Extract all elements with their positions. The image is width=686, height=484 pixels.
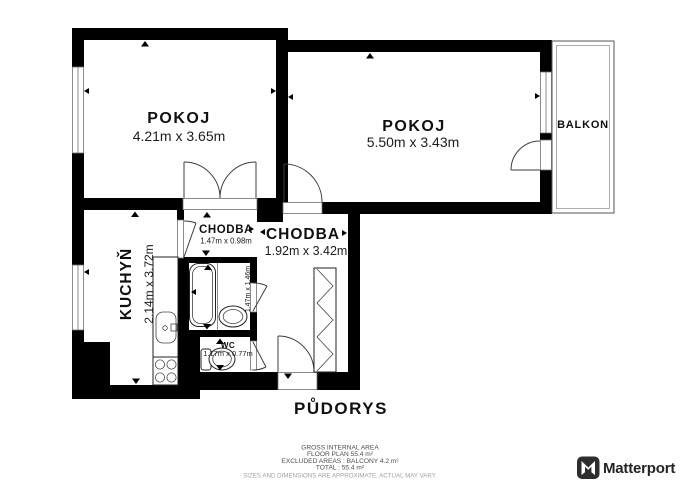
balkon-label: BALKON: [557, 119, 609, 131]
door-arc: [184, 162, 220, 198]
footer-line-4: TOTAL : 55.4 m²: [316, 465, 365, 472]
measure-arrow: [132, 379, 140, 385]
footer-disclaimer: SIZES AND DIMENSIONS ARE APPROXIMATE, AC…: [243, 473, 437, 480]
koupelna-dims: 1.47m x 1.46m: [245, 266, 252, 312]
kuchyn-dims: 2.14m x 3.72m: [142, 244, 156, 323]
door-arc: [278, 336, 314, 372]
wall-segment: [72, 198, 183, 210]
floorplan-page: POKOJ 4.21m x 3.65m POKOJ 5.50m x 3.43m …: [0, 0, 686, 484]
pokoj2-label: POKOJ: [382, 118, 446, 135]
wall-segment: [200, 372, 278, 390]
floorplan-canvas: POKOJ 4.21m x 3.65m POKOJ 5.50m x 3.43m …: [0, 0, 686, 484]
wall-segment: [276, 40, 552, 52]
matterport-logo: Matterport: [577, 457, 675, 480]
wall-segment: [177, 257, 257, 263]
measure-arrow: [202, 251, 210, 257]
wall-segment: [72, 28, 288, 40]
footer-area-summary: GROSS INTERNAL AREA FLOOR PLAN 55.4 m² E…: [243, 445, 437, 480]
measure-arrow: [260, 229, 265, 235]
measure-arrow: [342, 230, 347, 236]
wall-segment: [177, 330, 257, 337]
kitchen-door-threshold: [178, 220, 184, 258]
wall-segment: [177, 257, 189, 337]
entry-door-threshold: [278, 373, 317, 390]
door-arc: [184, 221, 196, 223]
door-arc: [284, 164, 322, 202]
wall-segment: [317, 372, 360, 390]
measure-arrow: [131, 212, 139, 218]
wall-segment: [250, 312, 257, 341]
measure-arrow: [84, 269, 89, 275]
page-title: PŮDORYS: [294, 398, 388, 418]
chodba-small-dims: 1.47m x 0.98m: [200, 237, 252, 246]
wall-segment: [540, 133, 552, 140]
double-door-threshold: [183, 199, 257, 210]
wall-segment: [540, 170, 552, 214]
kuchyn-label: KUCHYŇ: [117, 248, 135, 320]
measure-arrow: [271, 88, 276, 94]
wall-segment: [177, 330, 200, 390]
wall-segment: [540, 40, 552, 72]
chodba-large-label: CHODBA: [266, 226, 340, 243]
measure-arrow: [535, 93, 540, 99]
wc-dims: 1.17m x 0.77m: [203, 349, 253, 358]
balcony-door-threshold: [541, 140, 552, 170]
door-arc: [220, 162, 256, 198]
measure-arrow: [203, 212, 211, 218]
chodba-small-label: CHODBA: [199, 224, 253, 236]
wall-segment: [177, 210, 184, 220]
matterport-wordmark: Matterport: [603, 460, 675, 477]
measure-arrow: [84, 88, 89, 94]
pokoj2-dims: 5.50m x 3.43m: [367, 134, 460, 150]
wall-segment: [322, 202, 552, 214]
door-arc: [511, 141, 540, 170]
measure-arrow: [366, 53, 374, 59]
measure-arrow: [141, 41, 149, 47]
pokoj1-label: POKOJ: [147, 110, 211, 127]
wall-segment: [72, 210, 84, 265]
door-swings: [184, 141, 540, 372]
chodba-large-dims: 1.92m x 3.42m: [265, 244, 348, 258]
pokoj2-door-threshold: [283, 203, 322, 214]
pokoj1-dims: 4.21m x 3.65m: [133, 128, 226, 144]
wall-segment: [348, 214, 360, 372]
bathtub: [190, 264, 216, 327]
door-leaf: [184, 223, 196, 257]
measure-arrow: [288, 94, 293, 100]
wall-segment: [276, 28, 288, 210]
wall-segment: [257, 198, 283, 222]
